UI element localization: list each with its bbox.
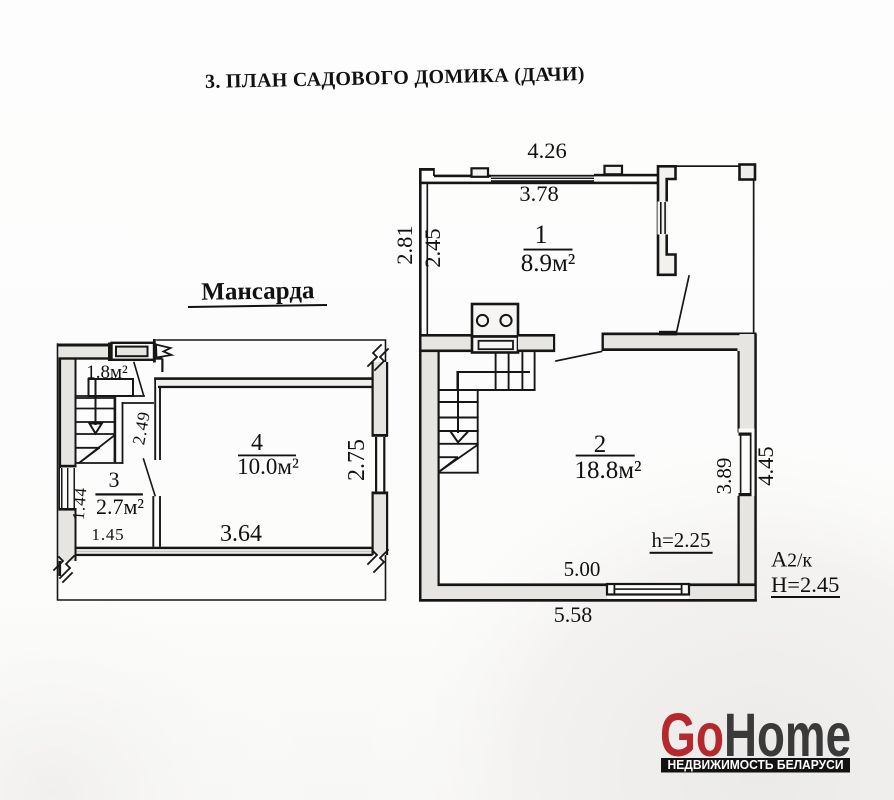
- svg-text:10.0м²: 10.0м²: [237, 454, 299, 479]
- svg-text:18.8м²: 18.8м²: [574, 457, 641, 484]
- svg-text:2.7м²: 2.7м²: [96, 494, 144, 519]
- svg-text:3.64: 3.64: [220, 521, 262, 547]
- svg-text:4.26: 4.26: [527, 138, 566, 163]
- svg-text:2.75: 2.75: [344, 439, 370, 481]
- svg-text:5.00: 5.00: [564, 557, 601, 581]
- svg-text:2.45: 2.45: [420, 228, 445, 267]
- svg-text:НЕДВИЖИМОСТЬ БЕЛАРУСИ: НЕДВИЖИМОСТЬ БЕЛАРУСИ: [668, 758, 844, 772]
- svg-text:1.44: 1.44: [69, 486, 91, 520]
- svg-text:1: 1: [535, 220, 548, 249]
- svg-text:4.45: 4.45: [753, 446, 778, 485]
- svg-text:3: 3: [109, 467, 120, 492]
- svg-text:Мансарда: Мансарда: [201, 277, 315, 306]
- svg-text:2.81: 2.81: [392, 225, 417, 264]
- svg-text:H=2.45: H=2.45: [771, 572, 839, 597]
- svg-text:4: 4: [251, 430, 263, 456]
- svg-text:5.58: 5.58: [554, 602, 593, 627]
- svg-text:3.89: 3.89: [712, 458, 736, 495]
- svg-text:8.9м²: 8.9м²: [521, 250, 576, 277]
- svg-text:3.78: 3.78: [519, 181, 558, 206]
- svg-text:2: 2: [594, 431, 607, 458]
- svg-text:1.45: 1.45: [92, 525, 125, 544]
- svg-text:h=2.25: h=2.25: [651, 528, 710, 552]
- svg-text:А2/к: А2/к: [771, 547, 812, 572]
